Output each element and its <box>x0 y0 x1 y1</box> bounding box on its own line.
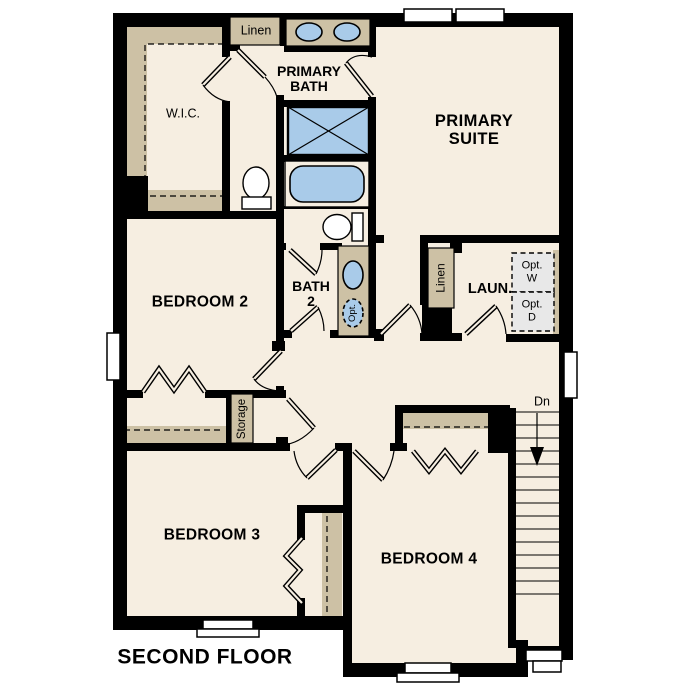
label-optional-sink: Opt. <box>348 304 358 322</box>
label-optional-washer: Opt.W <box>522 259 543 284</box>
label-linen-laundry: Linen <box>435 263 448 292</box>
shower <box>288 107 369 155</box>
toilet-water-closet <box>242 167 271 209</box>
window-bedroom3-bottom-a <box>203 620 253 629</box>
label-primary-bath: PRIMARYBATH <box>277 64 341 94</box>
label-bedroom4: BEDROOM 4 <box>381 552 478 569</box>
window-bedroom4-bottom-b <box>397 673 459 682</box>
window-primary-suite-left <box>404 9 452 22</box>
window-stairs-bottom-a <box>526 650 562 661</box>
window-primary-suite-right <box>456 9 504 22</box>
label-bedroom3: BEDROOM 3 <box>164 528 261 545</box>
label-bath2: BATH2 <box>292 279 330 309</box>
window-stairs-right <box>564 352 577 398</box>
toilet-primary-bath <box>323 213 363 241</box>
label-linen-top: Linen <box>241 24 272 38</box>
label-primary-suite: PRIMARYSUITE <box>435 113 513 149</box>
sink-left <box>296 23 322 41</box>
floor-plan: Linen PRIMARYBATH W.I.C. PRIMARYSUITE BE… <box>0 0 687 687</box>
window-bedroom4-bottom-a <box>405 663 451 673</box>
label-optional-dryer: Opt.D <box>522 298 543 323</box>
label-storage: Storage <box>236 399 248 439</box>
plan-title: SECOND FLOOR <box>117 647 292 670</box>
bath2-vanity <box>338 246 369 336</box>
floor-plan-drawing <box>0 0 687 687</box>
label-laundry: LAUN. <box>468 282 512 298</box>
window-bedroom2-left <box>107 333 120 380</box>
window-bedroom3-bottom-b <box>197 629 259 637</box>
bathtub <box>285 161 369 207</box>
bath2-sink <box>343 261 363 289</box>
sink-right <box>334 23 360 41</box>
window-stairs-bottom-b <box>533 661 561 672</box>
label-bedroom2: BEDROOM 2 <box>152 295 249 312</box>
label-stairs-down: Dn <box>534 395 550 409</box>
label-wic: W.I.C. <box>166 107 200 121</box>
